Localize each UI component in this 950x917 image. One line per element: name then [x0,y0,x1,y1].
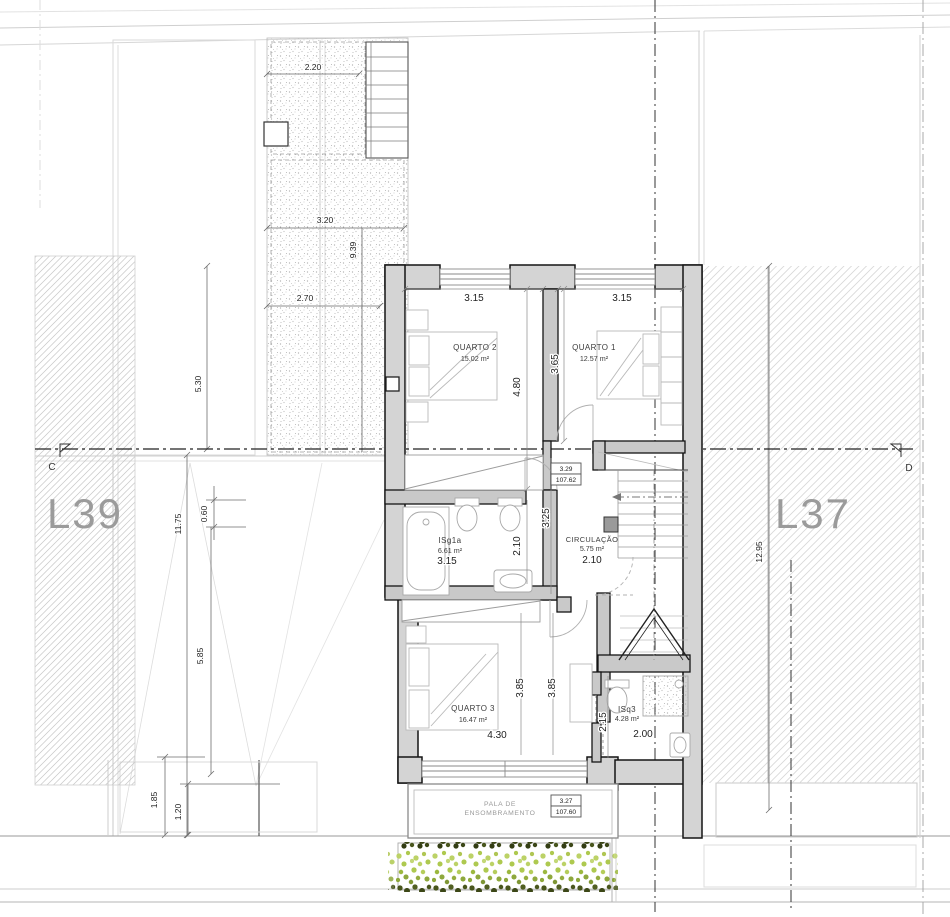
level-marker-pala: 3.27 107.60 [551,795,581,817]
window-q1 [575,269,655,285]
dim-bath1-height: 2.10 [512,536,523,556]
floor-plan-svg: L39 L37 2.20 3.20 2.70 9.39 [0,0,950,917]
dim-q3-width: 4.30 [487,730,507,741]
dim-q3-height1: 3.85 [515,678,526,698]
shower-bath3 [643,676,688,716]
dim-1175: 11.75 [173,513,183,534]
room-q2-area: 15.02 m² [461,354,490,363]
level-pala-rel: 3.27 [560,798,573,805]
room-bath3-area: 4.28 m² [615,714,640,723]
section-label-d: D [905,463,912,474]
level-upper-rel: 3.29 [560,466,573,473]
stairs [598,452,689,660]
dim-terrace-939: 9.39 [348,241,358,258]
dim-185: 1.85 [149,791,159,808]
room-label-bath1: ISg1a 6.61 m² [438,536,463,555]
bed-q3 [406,626,592,730]
terrace-box [264,122,288,146]
dim-q1-width: 3.15 [612,293,632,304]
window-q2 [440,269,510,285]
dim-q3-height2: 3.85 [547,678,558,698]
left-dimension-chain: 5.30 11.75 0.60 5.85 1.85 1.20 [149,263,280,838]
shade-canopy: PALA DE ENSOMBRAMENTO 3.27 107.60 [408,784,618,838]
level-pala-abs: 107.60 [556,809,577,816]
dim-q1-height: 3.65 [550,354,561,374]
sink-bath1 [494,570,532,592]
dim-terrace-220: 2.20 [305,62,322,72]
stair-newel [604,517,618,532]
dim-1295: 12.95 [754,541,764,563]
room-q1-area: 12.57 m² [580,354,609,363]
lot-label-l37: L37 [775,490,851,537]
shade-label-line2: ENSOMBRAMENTO [464,810,535,817]
room-q3-area: 16.47 m² [459,715,488,724]
room-circ-name: CIRCULAÇÃO [566,535,618,544]
dim-hall-height: 3.25 [541,508,552,528]
bidet-bath1 [498,498,522,531]
wardrobe-q1 [661,307,682,425]
closet-q2 [405,455,543,490]
section-label-c: C [48,462,55,473]
sink-bath3 [670,733,690,757]
dim-585: 5.85 [195,647,205,664]
room-q3-name: QUARTO 3 [451,704,495,713]
dim-circ-width: 2.10 [582,555,602,566]
pergola [366,42,408,158]
room-label-bath3: ISq3 4.28 m² [615,705,640,723]
room-bath1-name: ISg1a [439,536,462,545]
closet-q3 [402,600,540,622]
room-q1-name: QUARTO 1 [572,343,616,352]
dim-bath3-height: 2.15 [598,712,609,732]
room-label-circ: CIRCULAÇÃO 5.75 m² [566,535,618,553]
dim-q2-height: 4.80 [512,377,523,397]
bed-q1 [597,307,682,425]
window-q2-side [386,377,399,391]
dim-bath3-width: 2.00 [633,729,653,740]
stair-walkline-arrow [612,493,621,501]
lot-label-l39: L39 [47,490,123,537]
dim-q2-width: 3.15 [464,293,484,304]
floor-plan-drawing: L39 L37 2.20 3.20 2.70 9.39 [0,0,950,917]
dim-120: 1.20 [173,803,183,820]
room-q2-name: QUARTO 2 [453,343,497,352]
dim-terrace-270: 2.70 [297,293,314,303]
toilet-bath1 [455,498,479,531]
level-marker-upper: 3.29 107.62 [551,463,581,485]
bed-q2 [406,310,497,422]
level-upper-abs: 107.62 [556,477,577,484]
room-bath1-area: 6.61 m² [438,546,463,555]
desk-q3 [570,664,592,722]
room-bath3-name: ISq3 [618,705,636,714]
door-q1 [557,405,593,441]
dim-530: 5.30 [193,375,203,392]
window-q3 [422,761,587,777]
room-circ-area: 5.75 m² [580,544,605,553]
shade-label-line1: PALA DE [484,801,516,808]
vegetation [388,842,618,892]
dim-bath1-width: 3.15 [437,556,457,567]
dim-terrace-320: 3.20 [317,215,334,225]
dim-060: 0.60 [199,505,209,522]
